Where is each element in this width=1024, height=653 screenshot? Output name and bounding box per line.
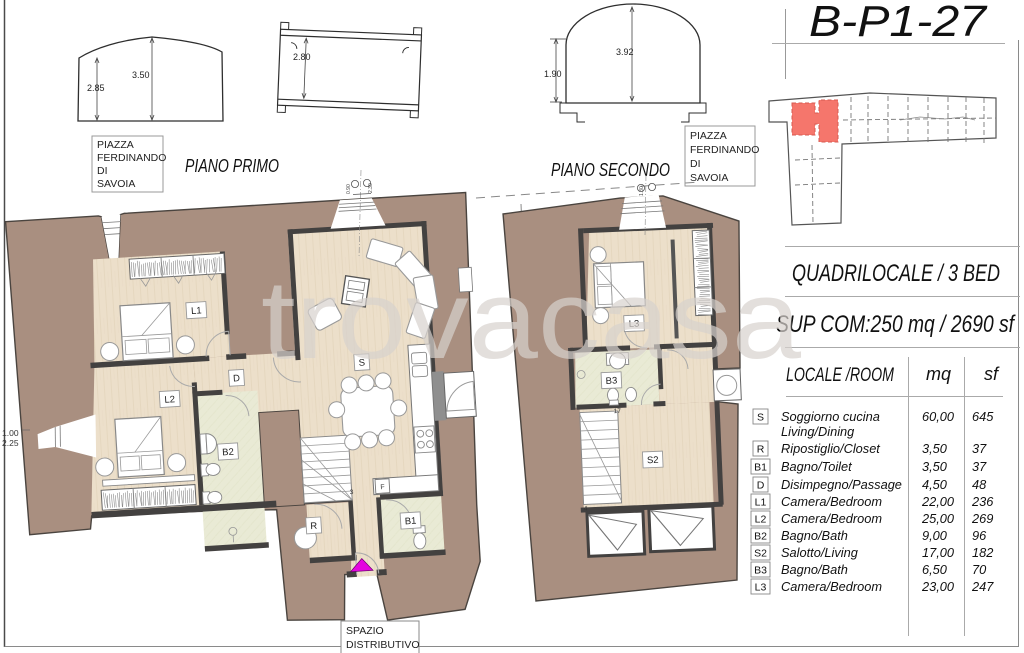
svg-text:0.90: 0.90 <box>346 184 352 194</box>
svg-text:2.85: 2.85 <box>87 83 105 93</box>
svg-text:Camera/Bedroom: Camera/Bedroom <box>781 494 882 509</box>
svg-text:B3: B3 <box>754 565 767 577</box>
svg-text:25,00: 25,00 <box>921 511 955 526</box>
svg-text:DISTRIBUTIVO: DISTRIBUTIVO <box>346 639 420 651</box>
svg-text:S: S <box>757 412 764 424</box>
svg-text:3,50: 3,50 <box>922 459 948 474</box>
svg-text:Living/Dining: Living/Dining <box>781 424 854 439</box>
svg-text:2.25: 2.25 <box>2 438 19 448</box>
svg-text:SAVOIA: SAVOIA <box>690 172 728 184</box>
svg-text:247: 247 <box>971 579 994 594</box>
svg-text:4,50: 4,50 <box>922 477 948 492</box>
svg-text:Soggiorno cucina: Soggiorno cucina <box>781 409 880 424</box>
svg-text:R: R <box>310 521 318 532</box>
svg-text:mq: mq <box>926 364 951 384</box>
svg-text:645: 645 <box>972 409 994 424</box>
svg-text:DI: DI <box>690 158 701 170</box>
svg-text:Salotto/Living: Salotto/Living <box>781 545 858 560</box>
svg-text:PIANO SECONDO: PIANO SECONDO <box>551 160 670 180</box>
svg-text:Bagno/Bath: Bagno/Bath <box>781 528 848 543</box>
svg-text:3.92: 3.92 <box>616 47 634 57</box>
svg-text:B2: B2 <box>222 447 234 459</box>
svg-text:Camera/Bedroom: Camera/Bedroom <box>781 511 882 526</box>
svg-text:B2: B2 <box>754 531 767 543</box>
svg-text:Bagno/Bath: Bagno/Bath <box>781 562 848 577</box>
svg-text:1.00: 1.00 <box>2 428 19 438</box>
svg-text:182: 182 <box>972 545 993 560</box>
svg-text:17,00: 17,00 <box>922 545 955 560</box>
svg-text:L2: L2 <box>755 514 767 526</box>
svg-text:23,00: 23,00 <box>921 579 955 594</box>
svg-text:D: D <box>757 480 765 492</box>
svg-text:9,00: 9,00 <box>922 528 948 543</box>
svg-text:6,50: 6,50 <box>922 562 948 577</box>
svg-text:SPAZIO: SPAZIO <box>346 625 384 637</box>
svg-text:SAVOIA: SAVOIA <box>97 178 135 190</box>
svg-text:Disimpegno/Passage: Disimpegno/Passage <box>781 477 902 492</box>
svg-text:Ripostiglio/Closet: Ripostiglio/Closet <box>781 441 880 456</box>
svg-text:S2: S2 <box>754 548 767 560</box>
svg-text:R: R <box>757 444 765 456</box>
svg-text:D: D <box>233 373 241 384</box>
svg-text:17: 17 <box>614 408 622 415</box>
svg-text:4: 4 <box>584 505 588 512</box>
svg-text:3.50: 3.50 <box>132 70 150 80</box>
svg-text:F: F <box>380 484 385 491</box>
svg-text:B1: B1 <box>404 516 416 528</box>
svg-text:1.30: 1.30 <box>639 186 645 196</box>
svg-text:B-P1-27: B-P1-27 <box>809 0 988 46</box>
svg-text:269: 269 <box>971 511 993 526</box>
svg-text:LOCALE /ROOM: LOCALE /ROOM <box>786 365 894 386</box>
svg-text:3,50: 3,50 <box>922 441 948 456</box>
svg-text:Camera/Bedroom: Camera/Bedroom <box>781 579 882 594</box>
svg-text:S2: S2 <box>647 455 659 466</box>
svg-text:PIAZZA: PIAZZA <box>97 139 134 151</box>
svg-text:37: 37 <box>972 441 987 456</box>
svg-text:L1: L1 <box>755 497 767 509</box>
svg-text:FERDINANDO: FERDINANDO <box>97 152 166 164</box>
svg-text:L3: L3 <box>755 582 767 594</box>
svg-text:60,00: 60,00 <box>922 409 955 424</box>
svg-text:DI: DI <box>97 165 108 177</box>
svg-text:1.90: 1.90 <box>544 69 562 79</box>
svg-text:B1: B1 <box>754 462 767 474</box>
svg-text:Bagno/Toilet: Bagno/Toilet <box>781 459 852 474</box>
svg-text:37: 37 <box>972 459 987 474</box>
svg-text:48: 48 <box>972 477 987 492</box>
svg-text:70: 70 <box>972 562 987 577</box>
svg-text:96: 96 <box>972 528 987 543</box>
svg-text:L2: L2 <box>164 394 175 406</box>
svg-text:sf: sf <box>984 364 1000 384</box>
svg-text:trovacasa: trovacasa <box>261 257 802 382</box>
svg-text:PIANO PRIMO: PIANO PRIMO <box>185 156 279 176</box>
svg-text:L1: L1 <box>191 305 202 317</box>
svg-text:QUADRILOCALE / 3 BED: QUADRILOCALE / 3 BED <box>792 260 1000 287</box>
svg-text:SUP COM:250 mq / 2690 sf: SUP COM:250 mq / 2690 sf <box>776 311 1016 338</box>
svg-text:236: 236 <box>971 494 994 509</box>
svg-text:FERDINANDO: FERDINANDO <box>690 144 759 156</box>
svg-text:22,00: 22,00 <box>921 494 955 509</box>
svg-text:2.30: 2.30 <box>368 183 374 193</box>
svg-text:2.80: 2.80 <box>293 52 311 62</box>
svg-text:PIAZZA: PIAZZA <box>690 130 727 142</box>
